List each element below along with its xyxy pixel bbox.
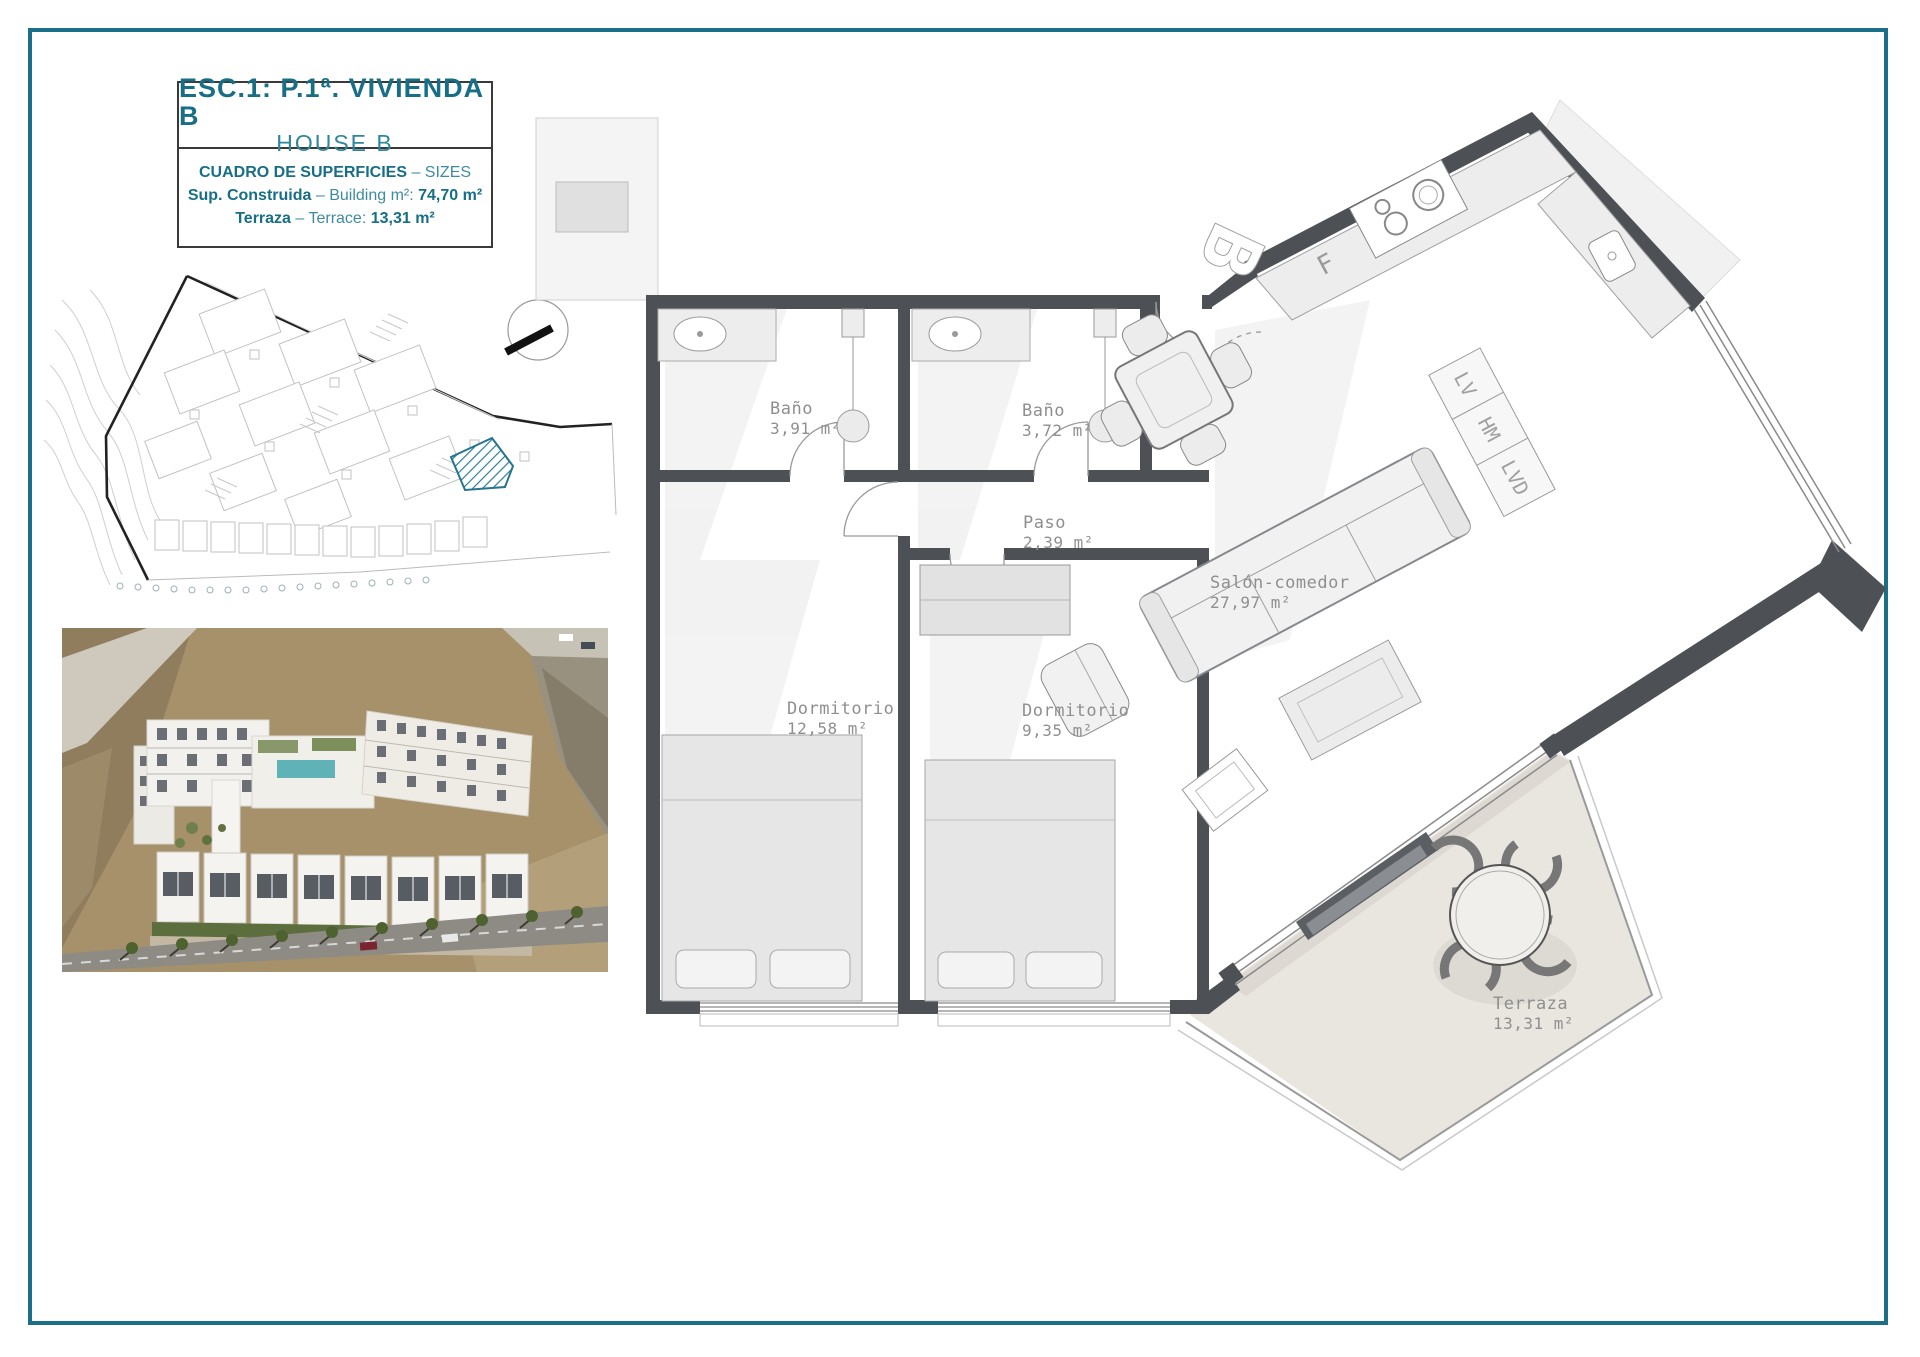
- toilet-icon: [837, 410, 869, 442]
- bedroom-2-furniture: [920, 565, 1115, 1001]
- site-buildings: [145, 289, 529, 557]
- room-area-bano2: 3,72 m²: [1022, 421, 1093, 440]
- sizes-row-built: Sup. Construida – Building m²: 74,70 m²: [188, 186, 482, 206]
- sizes-table: CUADRO DE SUPERFICIES – SIZES Sup. Const…: [179, 149, 491, 229]
- right-window: [1694, 301, 1851, 552]
- room-area-paso: 2,39 m²: [1023, 533, 1094, 552]
- unit-marker: B: [1182, 212, 1279, 289]
- project-title-en: HOUSE B: [276, 131, 394, 156]
- room-area-dorm1: 12,58 m²: [787, 719, 868, 738]
- room-label-bano1: Baño: [770, 399, 813, 419]
- sizes-header: CUADRO DE SUPERFICIES – SIZES: [199, 163, 471, 183]
- title-block-header: ESC.1: P.1ª. VIVIENDA B HOUSE B: [179, 83, 491, 149]
- page: ESC.1: P.1ª. VIVIENDA B HOUSE B CUADRO D…: [0, 0, 1920, 1357]
- bedroom-1-furniture: [662, 735, 862, 1001]
- terrace-table-icon: [1450, 865, 1550, 965]
- project-title: ESC.1: P.1ª. VIVIENDA B: [179, 74, 491, 131]
- room-area-bano1: 3,91 m²: [770, 419, 841, 438]
- room-area-dorm2: 9,35 m²: [1022, 721, 1093, 740]
- highlighted-unit[interactable]: [451, 438, 513, 490]
- room-label-dorm1: Dormitorio: [787, 699, 894, 719]
- title-block: ESC.1: P.1ª. VIVIENDA B HOUSE B CUADRO D…: [177, 81, 493, 248]
- side-table-icon: [1182, 749, 1268, 831]
- floor-plan: F LV HM LVD: [530, 90, 1910, 1200]
- room-label-bano2: Baño: [1022, 401, 1065, 421]
- room-area-terraza: 13,31 m²: [1493, 1014, 1574, 1033]
- sizes-row-terrace: Terraza – Terrace: 13,31 m²: [235, 209, 435, 229]
- terrain-contours: [44, 290, 160, 585]
- aerial-pool: [277, 760, 335, 778]
- terrace-floor: [1190, 750, 1652, 1160]
- room-label-salon: Salón-comedor: [1210, 573, 1350, 593]
- aerial-photo: [62, 628, 608, 972]
- room-label-terraza: Terraza: [1493, 994, 1568, 1014]
- room-label-paso: Paso: [1023, 513, 1066, 533]
- room-area-salon: 27,97 m²: [1210, 593, 1291, 612]
- coffee-table-icon: [1279, 640, 1421, 760]
- room-label-dorm2: Dormitorio: [1022, 701, 1129, 721]
